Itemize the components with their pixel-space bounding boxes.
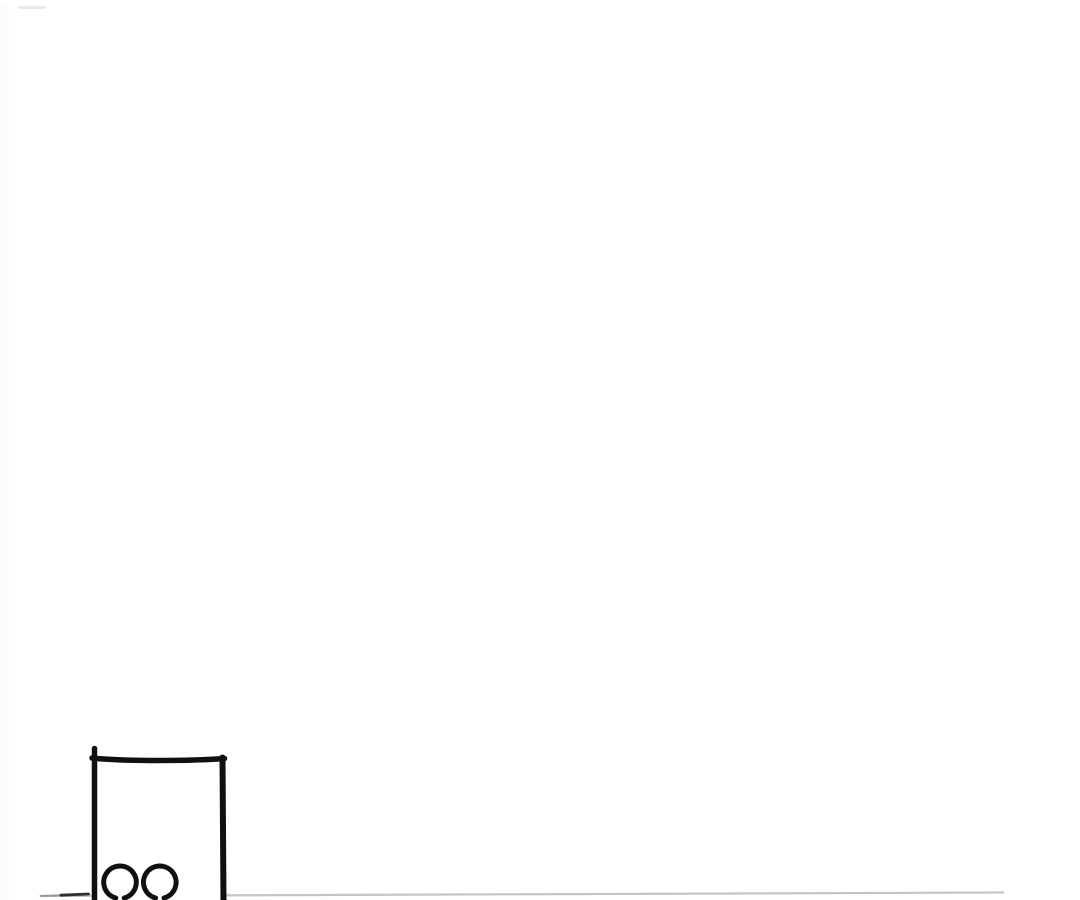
ink-smudge-right	[61, 894, 89, 895]
blank-page-canvas	[0, 0, 1080, 900]
panel-box-top-edge	[92, 758, 225, 761]
ink-smudge-left	[41, 895, 62, 896]
panel-box-fill	[92, 758, 225, 900]
page-edge-tint	[0, 6, 9, 900]
scan-artifact-streak	[18, 6, 46, 9]
panel-box-right-edge	[223, 758, 224, 900]
line-art-layer	[0, 0, 1080, 900]
